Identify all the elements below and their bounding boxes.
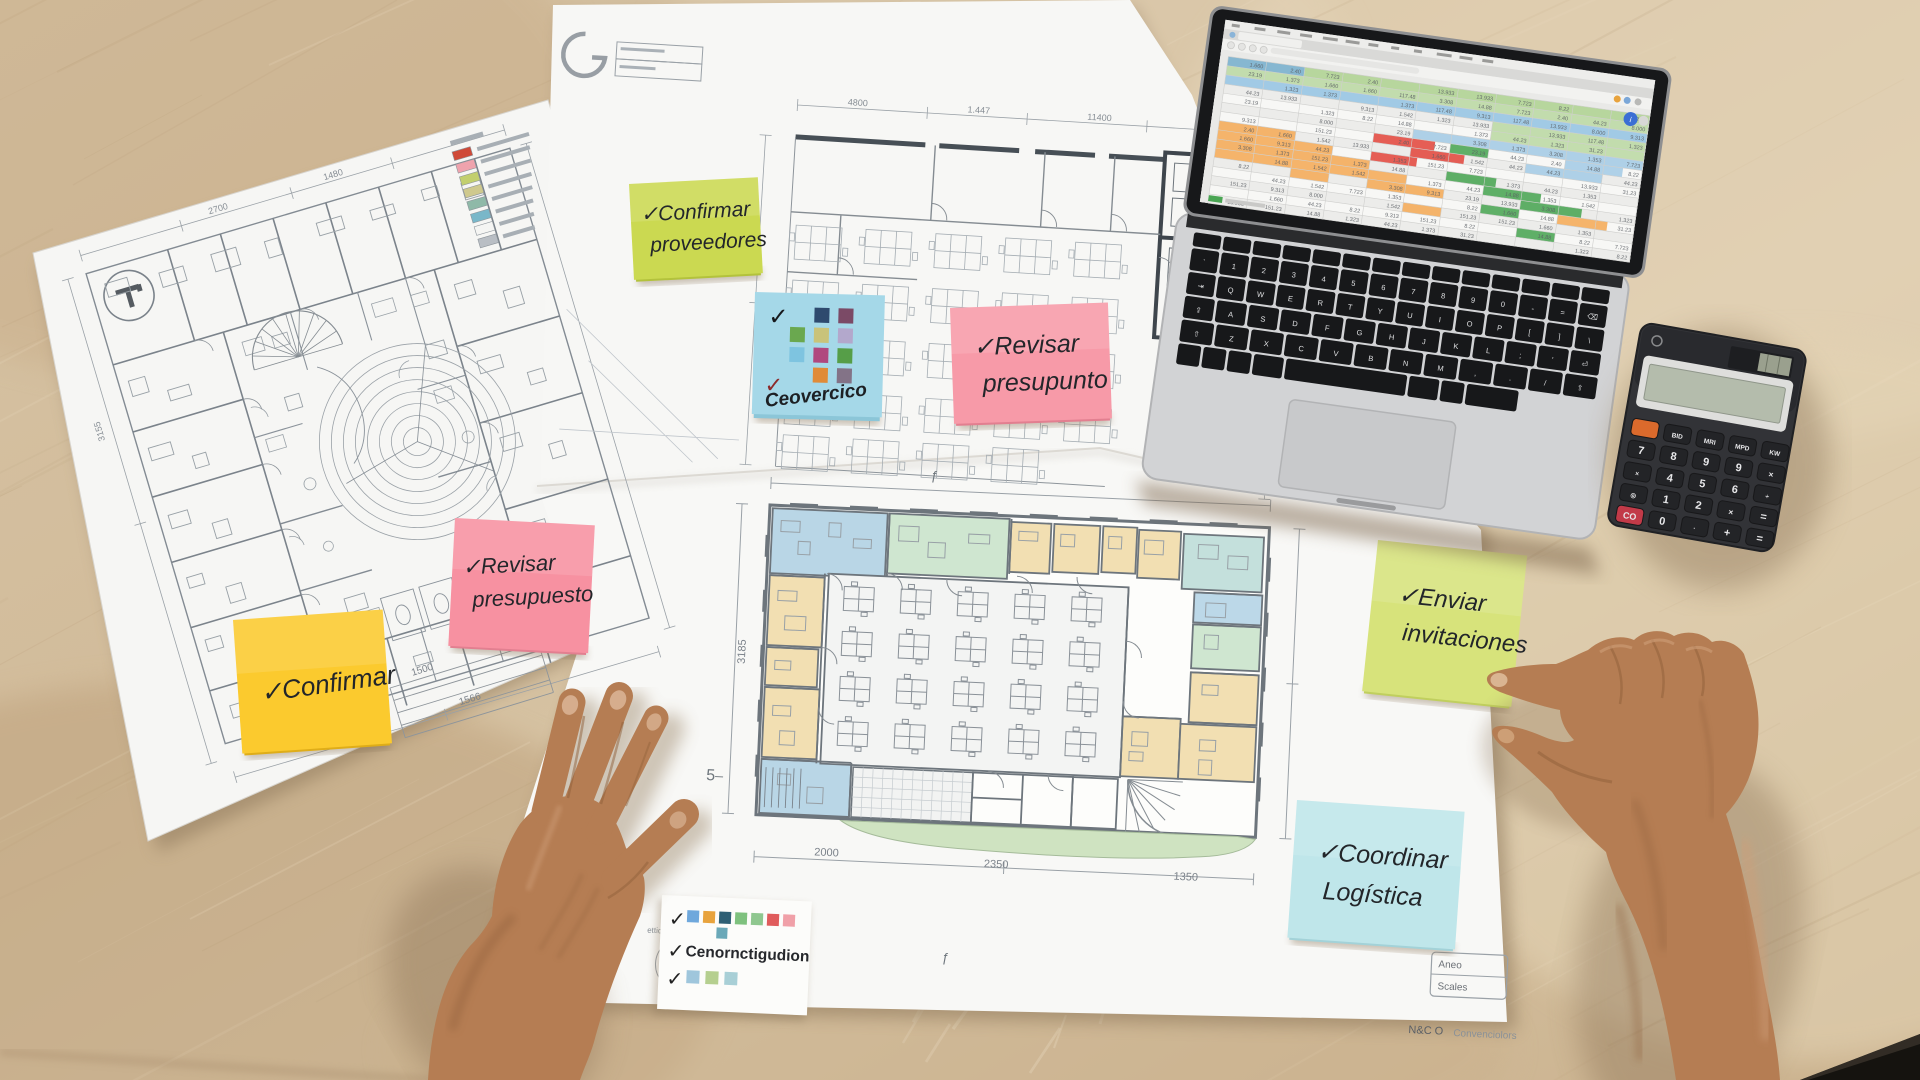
svg-text:✓Revisar: ✓Revisar xyxy=(973,329,1081,361)
svg-text:4800: 4800 xyxy=(847,97,868,108)
svg-text:⇪: ⇪ xyxy=(1195,305,1202,315)
svg-text:Aneo: Aneo xyxy=(1438,959,1462,971)
svg-text:presupunto: presupunto xyxy=(981,366,1108,398)
svg-text:✓: ✓ xyxy=(667,940,685,963)
svg-text:✓: ✓ xyxy=(668,908,686,931)
svg-text:2000: 2000 xyxy=(814,846,839,859)
svg-text:M: M xyxy=(1437,363,1444,373)
svg-text:⌫: ⌫ xyxy=(1587,312,1599,322)
svg-text:3185: 3185 xyxy=(736,639,749,664)
svg-text:11400: 11400 xyxy=(1087,112,1112,123)
svg-text:ƒ: ƒ xyxy=(942,950,949,965)
svg-text:✓: ✓ xyxy=(666,968,684,991)
svg-text:⇧: ⇧ xyxy=(1576,383,1583,393)
svg-text:Scales: Scales xyxy=(1437,981,1467,993)
svg-text:2350: 2350 xyxy=(984,858,1009,871)
svg-text:⇧: ⇧ xyxy=(1193,329,1200,339)
svg-text:✓Revisar: ✓Revisar xyxy=(462,550,558,580)
svg-text:ƒ: ƒ xyxy=(931,468,938,483)
svg-text:5⎯: 5⎯ xyxy=(706,767,724,785)
svg-text:N&C O: N&C O xyxy=(1408,1024,1444,1038)
svg-text:1.447: 1.447 xyxy=(967,104,990,115)
svg-text:1350: 1350 xyxy=(1173,871,1198,884)
svg-text:✓: ✓ xyxy=(768,303,789,331)
